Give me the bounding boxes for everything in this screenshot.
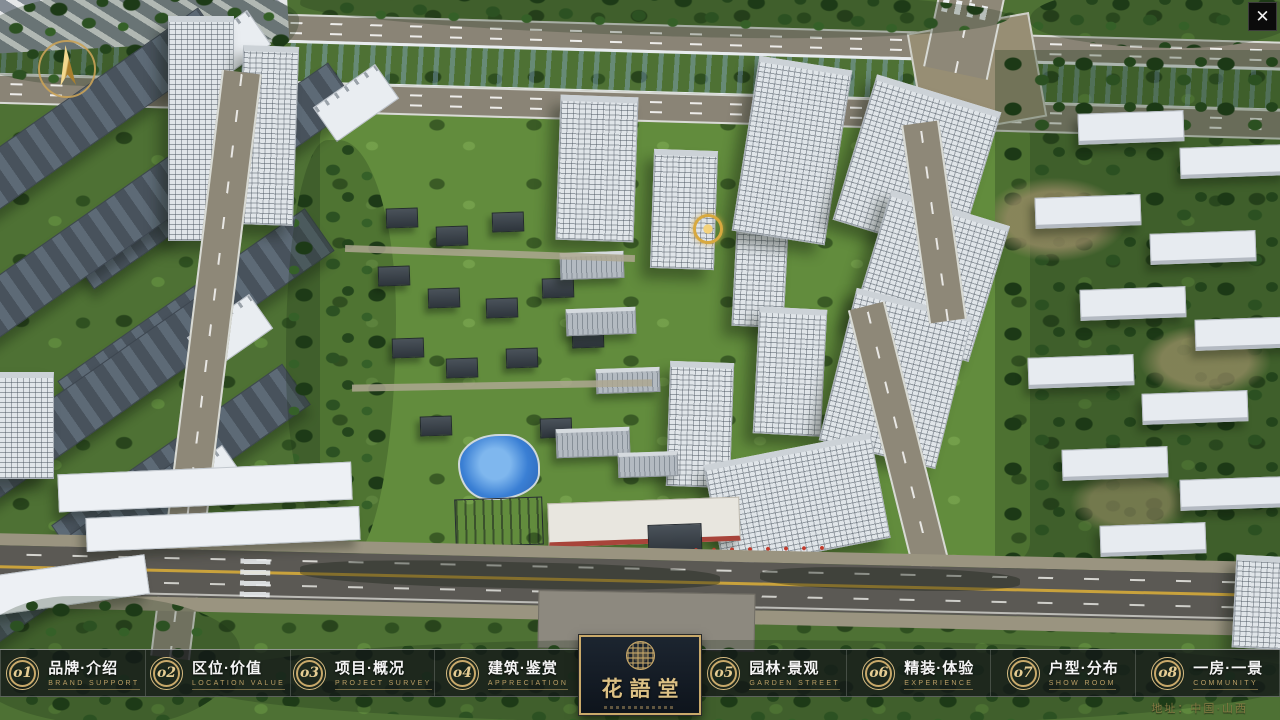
- nav-item-text: 一房·一景 COMMUNITY: [1193, 657, 1263, 690]
- east-slab-building: [1179, 476, 1280, 511]
- nav-item-text: 项目·概况 PROJECT SURVEY: [335, 657, 432, 690]
- swimming-pool: [458, 434, 540, 500]
- east-slab-building: [1027, 354, 1134, 389]
- logo-subtitle-dots: [604, 706, 676, 709]
- nav-item-sublabel: PROJECT SURVEY: [335, 680, 432, 690]
- nav-item-interior-experience[interactable]: o6 精装·体验 EXPERIENCE: [846, 650, 991, 696]
- nav-item-sublabel: GARDEN STREET: [749, 680, 840, 690]
- southeast-building: [1232, 554, 1280, 650]
- villa: [420, 415, 453, 436]
- bottom-nav-bar: o1 品牌·介绍 BRAND SUPPORT o2 区位·价值 LOCATION…: [0, 649, 1280, 697]
- midrise-building: [566, 307, 637, 336]
- midrise-building: [618, 451, 679, 478]
- villa: [446, 357, 479, 378]
- nav-item-text: 户型·分布 SHOW ROOM: [1049, 657, 1119, 690]
- logo-title: 花語堂: [595, 673, 686, 703]
- villa: [486, 297, 519, 318]
- nav-item-label: 建筑·鉴赏: [488, 657, 558, 678]
- nav-item-number: o7: [1014, 665, 1033, 681]
- nav-item-project-survey[interactable]: o3 项目·概况 PROJECT SURVEY: [290, 650, 435, 696]
- nav-item-label: 项目·概况: [335, 657, 405, 678]
- nav-number-badge: o8: [1151, 657, 1184, 690]
- nav-item-number: o5: [714, 665, 733, 681]
- masterplan-render-view: ✕ o1 品牌·介绍 BRAND SUPPORT o2 区位·价值 LOCATI…: [0, 0, 1280, 720]
- nav-item-label: 品牌·介绍: [48, 657, 118, 678]
- nav-number-badge: o6: [862, 657, 895, 690]
- villa: [386, 207, 419, 228]
- nav-group-right: o5 园林·景观 GARDEN STREET o6 精装·体验 EXPERIEN…: [701, 650, 1280, 696]
- villa: [436, 225, 469, 246]
- nav-item-text: 园林·景观 GARDEN STREET: [749, 657, 840, 690]
- nav-item-brand-intro[interactable]: o1 品牌·介绍 BRAND SUPPORT: [0, 650, 145, 696]
- gold-ornament: [693, 214, 723, 244]
- residential-tower: [650, 149, 718, 270]
- nav-item-sublabel: SHOW ROOM: [1049, 680, 1116, 690]
- east-slab-building: [1149, 230, 1256, 265]
- nav-item-sublabel: LOCATION VALUE: [192, 680, 285, 690]
- nav-number-badge: o2: [150, 657, 183, 690]
- nav-item-number: o4: [453, 665, 472, 681]
- nav-item-label: 区位·价值: [192, 657, 262, 678]
- nav-number-badge: o7: [1007, 657, 1040, 690]
- nav-item-label: 园林·景观: [749, 657, 819, 678]
- nav-item-label: 精装·体验: [904, 657, 974, 678]
- close-icon: ✕: [1255, 8, 1269, 25]
- east-slab-building: [1194, 316, 1280, 351]
- nav-number-badge: o4: [446, 657, 479, 690]
- nav-item-number: o6: [869, 665, 888, 681]
- nav-item-floorplan-distribution[interactable]: o7 户型·分布 SHOW ROOM: [990, 650, 1135, 696]
- compass-icon: [38, 40, 96, 98]
- nav-item-number: o8: [1158, 665, 1177, 681]
- nav-item-sublabel: EXPERIENCE: [904, 680, 973, 690]
- villa: [506, 347, 539, 368]
- nav-item-location-value[interactable]: o2 区位·价值 LOCATION VALUE: [145, 650, 290, 696]
- nav-item-label: 一房·一景: [1193, 657, 1263, 678]
- nav-number-badge: o3: [293, 657, 326, 690]
- east-slab-building: [1179, 144, 1280, 179]
- compass-needle-icon: [52, 44, 81, 92]
- close-button[interactable]: ✕: [1248, 2, 1277, 31]
- nav-item-text: 品牌·介绍 BRAND SUPPORT: [48, 657, 139, 690]
- nav-item-one-room-one-view[interactable]: o8 一房·一景 COMMUNITY: [1135, 650, 1280, 696]
- nav-item-text: 区位·价值 LOCATION VALUE: [192, 657, 285, 690]
- east-slab-building: [1077, 110, 1184, 145]
- nav-number-badge: o5: [707, 657, 740, 690]
- nav-item-garden-landscape[interactable]: o5 园林·景观 GARDEN STREET: [701, 650, 846, 696]
- nav-item-architecture[interactable]: o4 建筑·鉴赏 APPRECIATION: [434, 650, 579, 696]
- west-tower: [0, 372, 54, 479]
- nav-number-badge: o1: [6, 657, 39, 690]
- nav-group-left: o1 品牌·介绍 BRAND SUPPORT o2 区位·价值 LOCATION…: [0, 650, 579, 696]
- east-slab-building: [1034, 194, 1141, 229]
- project-logo[interactable]: 花語堂: [579, 635, 701, 715]
- nav-item-number: o2: [157, 665, 176, 681]
- villa: [392, 337, 425, 358]
- residential-tower: [555, 95, 638, 243]
- nav-item-sublabel: COMMUNITY: [1193, 680, 1258, 690]
- east-slab-building: [1061, 446, 1168, 481]
- villa: [492, 211, 525, 232]
- nav-item-sublabel: BRAND SUPPORT: [48, 680, 139, 690]
- villa: [378, 265, 411, 286]
- nav-item-text: 精装·体验 EXPERIENCE: [904, 657, 974, 690]
- residential-tower: [753, 306, 828, 436]
- villa: [428, 287, 461, 308]
- nav-item-sublabel: APPRECIATION: [488, 680, 568, 690]
- nav-item-text: 建筑·鉴赏 APPRECIATION: [488, 657, 568, 690]
- project-address: 地址：中国·山西: [1151, 700, 1248, 716]
- nav-item-number: o1: [13, 665, 32, 681]
- villa: [542, 277, 575, 298]
- nav-item-label: 户型·分布: [1049, 657, 1119, 678]
- east-slab-building: [1141, 390, 1248, 425]
- nav-item-number: o3: [300, 665, 319, 681]
- logo-seal-icon: [626, 641, 655, 670]
- east-slab-building: [1079, 286, 1186, 321]
